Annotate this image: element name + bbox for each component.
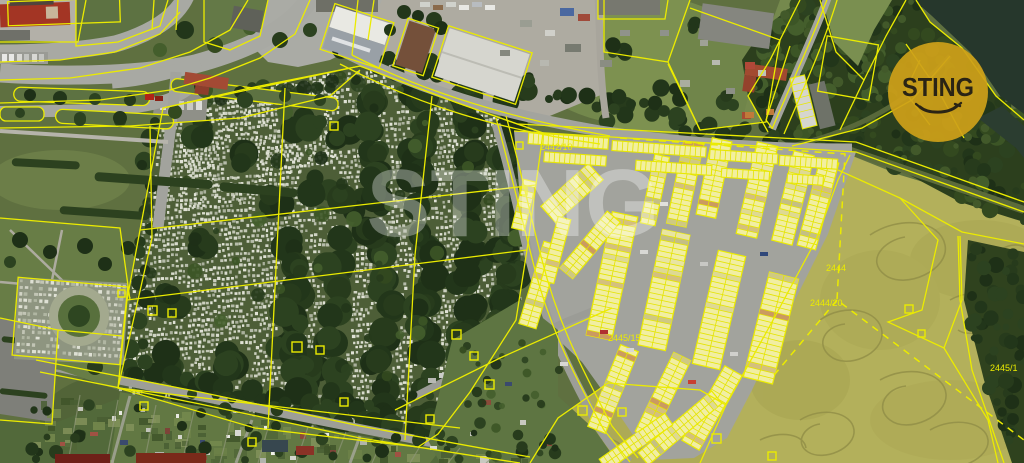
svg-text:STING: STING [366,150,659,257]
svg-text:2445/1: 2445/1 [990,363,1018,373]
svg-text:2444: 2444 [826,263,846,273]
svg-text:STING: STING [902,72,974,102]
svg-text:2445/15: 2445/15 [608,333,641,343]
svg-text:2444/20: 2444/20 [810,298,843,308]
